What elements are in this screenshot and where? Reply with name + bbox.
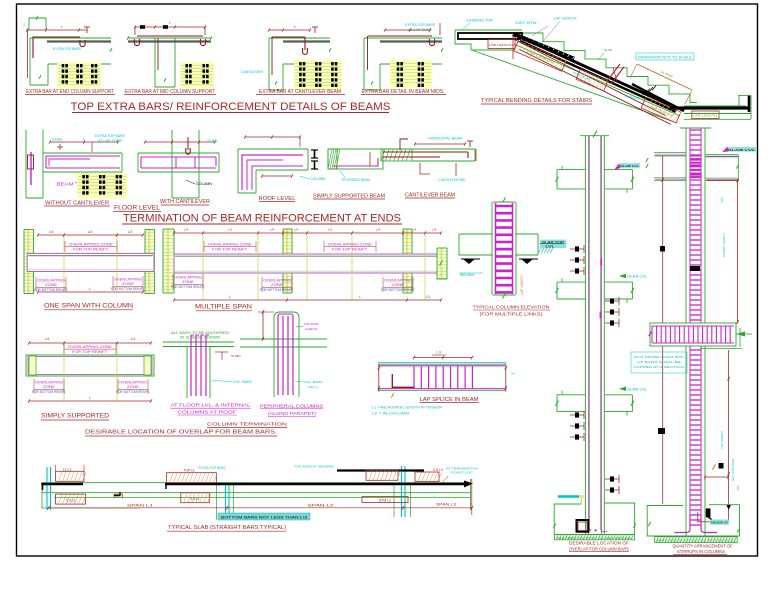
svg-text:L/2: L/2 bbox=[328, 228, 333, 232]
svg-text:(like L): (like L) bbox=[308, 385, 317, 389]
svg-text:WITHOUT CANTILEVER: WITHOUT CANTILEVER bbox=[45, 201, 109, 207]
svg-text:L: L bbox=[169, 21, 171, 25]
svg-text:L/4: L/4 bbox=[128, 230, 133, 234]
svg-text:PERIPHERAL COLUMNS: PERIPHERAL COLUMNS bbox=[260, 404, 323, 409]
svg-text:ZONE: ZONE bbox=[182, 280, 195, 284]
svg-text:LAP LENGTH: LAP LENGTH bbox=[520, 274, 524, 294]
svg-text:LAPPED AT A SECTION: LAPPED AT A SECTION bbox=[634, 365, 684, 369]
svg-text:SIMPLY SUPPORTED BEAM: SIMPLY SUPPORTED BEAM bbox=[313, 194, 385, 200]
svg-text:FOR TOP REINFT.: FOR TOP REINFT. bbox=[332, 248, 368, 252]
svg-text:EXTRA BAR DETAIL IN BEAM MIDS.: EXTRA BAR DETAIL IN BEAM MIDS. bbox=[362, 89, 445, 95]
svg-text:L3: L3 bbox=[426, 295, 430, 299]
svg-text:ANCHOR. XX: ANCHOR. XX bbox=[711, 521, 728, 525]
svg-text:FLOOR LEVEL: FLOOR LEVEL bbox=[114, 205, 160, 212]
svg-text:EXTRA BAR AT CANTILEVER BEAM: EXTRA BAR AT CANTILEVER BEAM bbox=[259, 89, 341, 95]
svg-text:ZONE: ZONE bbox=[271, 283, 284, 287]
svg-text:COL. BARS: COL. BARS bbox=[233, 380, 252, 384]
svg-text:TYPICAL SLAB (STRAIGHT BARS: TYPICAL SLAB (STRAIGHT BARS TYPICAL) bbox=[168, 525, 286, 531]
svg-text:SPAN L2: SPAN L2 bbox=[308, 503, 334, 507]
svg-text:PROVIDE FOOTING AS PER DESIGN: PROVIDE FOOTING AS PER DESIGN bbox=[557, 536, 631, 540]
svg-text:LAP LENGTH: LAP LENGTH bbox=[489, 43, 513, 47]
svg-text:L: L bbox=[61, 25, 63, 29]
svg-text:POINT LOC: POINT LOC bbox=[451, 471, 474, 475]
svg-text:LAP LENGTH: LAP LENGTH bbox=[554, 17, 578, 21]
svg-text:L/4: L/4 bbox=[131, 337, 136, 341]
svg-text:L/4: L/4 bbox=[184, 228, 189, 232]
svg-text:COLUMNS AT ROOF: COLUMNS AT ROOF bbox=[178, 410, 237, 415]
svg-text:FOR BOTTOM REINFT.: FOR BOTTOM REINFT. bbox=[32, 390, 66, 394]
svg-text:L: L bbox=[89, 287, 91, 291]
svg-text:CANTILEVER BEAM: CANTILEVER BEAM bbox=[405, 193, 455, 199]
svg-text:MULTIPLE SPAN: MULTIPLE SPAN bbox=[195, 304, 252, 311]
svg-text:0.5 L3: 0.5 L3 bbox=[433, 468, 443, 472]
svg-text:TOP BARS AT MIDSPAN: TOP BARS AT MIDSPAN bbox=[294, 465, 334, 469]
svg-text:BEAM: BEAM bbox=[57, 182, 74, 187]
svg-text:0.5 L1: 0.5 L1 bbox=[66, 499, 76, 503]
svg-text:SLAB: SLAB bbox=[52, 138, 62, 142]
svg-text:ZONE: ZONE bbox=[392, 283, 405, 287]
svg-text:L/2: L/2 bbox=[88, 230, 93, 234]
svg-text:SLAB: SLAB bbox=[604, 48, 612, 52]
svg-text:DIMENSION NOT TO SCALE: DIMENSION NOT TO SCALE bbox=[638, 55, 692, 59]
svg-text:SIMPLY SUPPORTED: SIMPLY SUPPORTED bbox=[41, 413, 109, 420]
svg-text:L/4: L/4 bbox=[376, 228, 381, 232]
svg-text:L/4: L/4 bbox=[412, 228, 417, 232]
svg-text:AT FLOOR LVL. & INTERNAL: AT FLOOR LVL. & INTERNAL bbox=[171, 403, 252, 408]
svg-text:TYPICAL BENDING DETAILS FOR ST: TYPICAL BENDING DETAILS FOR STAIRS bbox=[481, 98, 593, 104]
svg-text:OVERLAP FOR COLUMN BARS: OVERLAP FOR COLUMN BARS bbox=[569, 546, 629, 551]
svg-text:L1: L1 bbox=[116, 495, 120, 499]
svg-text:EXTRA TOP BARS: EXTRA TOP BARS bbox=[95, 134, 125, 138]
svg-text:LANDING TOP: LANDING TOP bbox=[467, 19, 493, 23]
svg-text:AT LAP ZONE: AT LAP ZONE bbox=[98, 139, 122, 143]
svg-text:FOR TOP REINFT.: FOR TOP REINFT. bbox=[212, 248, 248, 252]
svg-text:WITH CANTILEVER: WITH CANTILEVER bbox=[160, 199, 210, 205]
svg-text:LAP LENGTH: LAP LENGTH bbox=[720, 431, 724, 448]
svg-text:COLUMN: COLUMN bbox=[196, 182, 213, 186]
svg-text:EXTRA TOP BARS: EXTRA TOP BARS bbox=[199, 466, 226, 470]
svg-text:CANTILEVER END: CANTILEVER END bbox=[439, 178, 467, 182]
svg-text:L1 L1: L1 L1 bbox=[63, 467, 72, 471]
svg-text:50 BMT: 50 BMT bbox=[231, 354, 241, 358]
svg-text:L1 = ANCHORAGE LENGTH IN TENSI: L1 = ANCHORAGE LENGTH IN TENSION bbox=[372, 406, 443, 410]
svg-text:ZONE: ZONE bbox=[122, 282, 135, 286]
svg-text:L: L bbox=[294, 25, 296, 29]
svg-text:L: L bbox=[359, 295, 361, 299]
svg-text:CANTILEVER: CANTILEVER bbox=[241, 70, 264, 74]
svg-text:L/4: L/4 bbox=[432, 228, 437, 232]
svg-text:L/4: L/4 bbox=[270, 228, 275, 232]
svg-text:FOR BOTTOM REINFT.: FOR BOTTOM REINFT. bbox=[260, 288, 294, 292]
svg-text:FOR BOTTOM REINFT.: FOR BOTTOM REINFT. bbox=[381, 288, 415, 292]
svg-text:OVERLAPPING ZONE: OVERLAPPING ZONE bbox=[208, 243, 253, 247]
svg-text:L: L bbox=[89, 396, 91, 400]
svg-text:FOR TOP REINFT.: FOR TOP REINFT. bbox=[72, 350, 108, 354]
svg-text:LVL: LVL bbox=[546, 245, 555, 249]
svg-text:SLAB LVL: SLAB LVL bbox=[620, 164, 639, 168]
svg-text:SLAB: SLAB bbox=[207, 139, 217, 143]
svg-text:OVERLAPPING: OVERLAPPING bbox=[114, 278, 142, 282]
svg-text:ANCHOR: ANCHOR bbox=[304, 322, 320, 326]
svg-text:EXTRA TOP BARS: EXTRA TOP BARS bbox=[53, 47, 82, 51]
svg-text:OVERLAPPING: OVERLAPPING bbox=[37, 279, 65, 283]
svg-text:DESIRABLE LOCATION OF OVERL: DESIRABLE LOCATION OF OVERLAP FOR BEAM B… bbox=[85, 430, 277, 436]
svg-text:L: L bbox=[229, 295, 231, 299]
svg-text:TOP L1: TOP L1 bbox=[183, 469, 195, 473]
svg-text:FOR TOP REINFT.: FOR TOP REINFT. bbox=[73, 248, 109, 252]
svg-text:EXTENDED BEAM: EXTENDED BEAM bbox=[342, 178, 370, 182]
svg-text:BTM L2: BTM L2 bbox=[379, 498, 391, 502]
svg-text:STIRRUPS IN COLUMNS: STIRRUPS IN COLUMNS bbox=[677, 549, 725, 554]
svg-text:COLUMN TERMINATION: COLUMN TERMINATION bbox=[207, 422, 288, 428]
svg-text:450: 450 bbox=[736, 485, 740, 490]
svg-text:ALL BARS TO BE ANCHORED: ALL BARS TO BE ANCHORED bbox=[171, 331, 230, 335]
svg-text:SLAB LVL: SLAB LVL bbox=[728, 148, 757, 152]
svg-text:CHECK: CHECK bbox=[305, 327, 318, 331]
svg-text:PROVIDE FOOTING AS PER DESIGN: PROVIDE FOOTING AS PER DESIGN bbox=[657, 539, 735, 543]
svg-text:OVERLAPPING: OVERLAPPING bbox=[263, 279, 291, 283]
svg-text:LAP SPLICE IN BEAM: LAP SPLICE IN BEAM bbox=[420, 397, 479, 403]
svg-text:OVERLAPPING ZONE: OVERLAPPING ZONE bbox=[68, 345, 113, 349]
svg-text:TERMINATION OF BEAM REINFOR: TERMINATION OF BEAM REINFORCEMENT AT END… bbox=[123, 213, 401, 225]
svg-text:ONE SPAN WITH COLUMN: ONE SPAN WITH COLUMN bbox=[44, 303, 133, 310]
svg-text:FOR BOTTOM REINFT.: FOR BOTTOM REINFT. bbox=[116, 390, 150, 394]
svg-text:ZONE: ZONE bbox=[45, 283, 58, 287]
svg-text:XX: XX bbox=[511, 372, 515, 376]
svg-text:L/4: L/4 bbox=[294, 228, 299, 232]
svg-text:OVERLAPPING: OVERLAPPING bbox=[384, 279, 412, 283]
svg-text:L2 = IN COLUMN: L2 = IN COLUMN bbox=[372, 412, 410, 416]
svg-text:0.5 L1: 0.5 L1 bbox=[190, 497, 200, 501]
svg-text:BOTTOM BARS NOT LESS THAN L/3: BOTTOM BARS NOT LESS THAN L/3 bbox=[221, 515, 307, 519]
svg-text:L/4: L/4 bbox=[45, 337, 50, 341]
svg-text:(ALONG PARAPET): (ALONG PARAPET) bbox=[268, 411, 317, 416]
svg-text:ROOF LEVEL: ROOF LEVEL bbox=[259, 196, 296, 202]
svg-text:OF BARS SHALL BE: OF BARS SHALL BE bbox=[637, 360, 681, 364]
svg-text:COLUMN: COLUMN bbox=[310, 177, 326, 181]
svg-text:NOT LESS THAN: NOT LESS THAN bbox=[731, 459, 735, 481]
svg-text:DIST. BTW: DIST. BTW bbox=[516, 21, 537, 25]
svg-text:L/4: L/4 bbox=[49, 230, 54, 234]
svg-text:OVERLAPPING ZONE: OVERLAPPING ZONE bbox=[69, 243, 114, 247]
svg-text:QUANTITY ARRANGEMENT OF: QUANTITY ARRANGEMENT OF bbox=[673, 544, 733, 549]
svg-text:BEAM: BEAM bbox=[460, 273, 474, 277]
svg-text:SPAN L3: SPAN L3 bbox=[436, 503, 456, 507]
svg-text:OVERLAPPING ZONE: OVERLAPPING ZONE bbox=[328, 243, 373, 247]
svg-text:OVERLAPPING: OVERLAPPING bbox=[35, 381, 63, 385]
svg-text:FOR BOTTOM REINFT.: FOR BOTTOM REINFT. bbox=[171, 285, 205, 289]
svg-text:TYPICAL COLUMN ELEVATION: TYPICAL COLUMN ELEVATION bbox=[473, 305, 551, 311]
svg-text:STOREY HEIGHT: STOREY HEIGHT bbox=[722, 233, 726, 258]
svg-text:(FOR MULTIPLE LINKS): (FOR MULTIPLE LINKS) bbox=[480, 312, 543, 318]
svg-text:EXTRA BAR AT END COLUMN SUPPOR: EXTRA BAR AT END COLUMN SUPPORT bbox=[26, 89, 114, 95]
svg-text:SPAN L1: SPAN L1 bbox=[127, 504, 153, 508]
svg-text:ZONE: ZONE bbox=[43, 385, 56, 389]
svg-text:900: 900 bbox=[720, 197, 724, 202]
svg-text:FOR BOTTOM REINFT.: FOR BOTTOM REINFT. bbox=[111, 287, 145, 291]
svg-text:OVERLAPPING: OVERLAPPING bbox=[174, 276, 202, 280]
svg-text:SLAB LVL: SLAB LVL bbox=[627, 275, 647, 279]
svg-text:NOT MORE THAN 50%: NOT MORE THAN 50% bbox=[634, 355, 685, 359]
svg-text:LAP LENGTH: LAP LENGTH bbox=[693, 114, 717, 118]
svg-text:SLAB LVL: SLAB LVL bbox=[627, 387, 647, 391]
svg-text:L/2: L/2 bbox=[228, 228, 233, 232]
svg-text:EXTRA BAR AT MID COLUMN SUPPOR: EXTRA BAR AT MID COLUMN SUPPORT bbox=[125, 89, 215, 95]
svg-text:HORIZONTAL BEAM: HORIZONTAL BEAM bbox=[428, 137, 462, 141]
svg-text:ZONE: ZONE bbox=[127, 385, 140, 389]
svg-text:1.3L: 1.3L bbox=[436, 351, 443, 355]
svg-text:DESIRABLE LOCATION OF: DESIRABLE LOCATION OF bbox=[569, 541, 629, 546]
svg-text:COL. BARS: COL. BARS bbox=[304, 380, 323, 384]
svg-text:2: 2 bbox=[23, 23, 25, 27]
svg-text:OVERLAPPING: OVERLAPPING bbox=[119, 381, 147, 385]
svg-text:TOP EXTRA BARS/ REINFORCEME: TOP EXTRA BARS/ REINFORCEMENT DETAILS OF… bbox=[71, 101, 391, 113]
svg-text:EXTRA TOP BARS: EXTRA TOP BARS bbox=[405, 23, 436, 27]
